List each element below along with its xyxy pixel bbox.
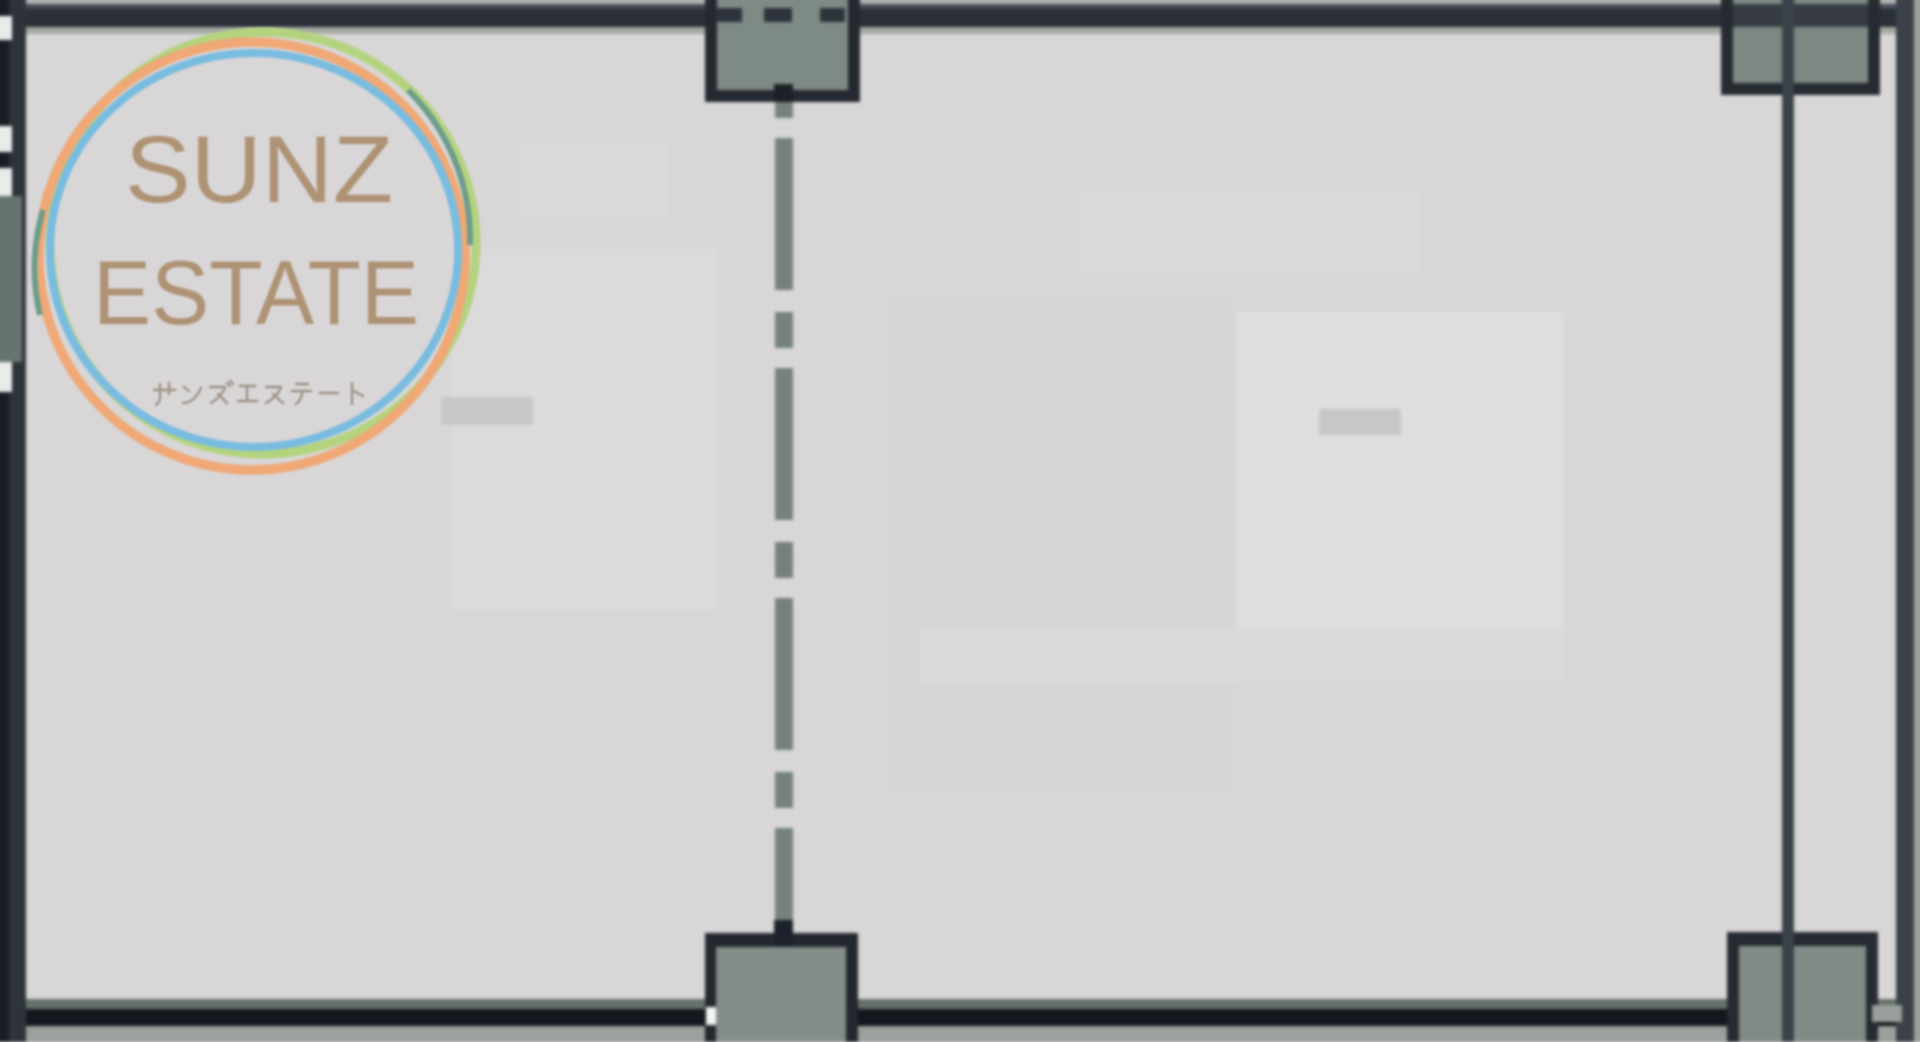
svg-text:SUNZ: SUNZ xyxy=(125,117,393,223)
svg-text:ESTATE: ESTATE xyxy=(93,243,419,344)
